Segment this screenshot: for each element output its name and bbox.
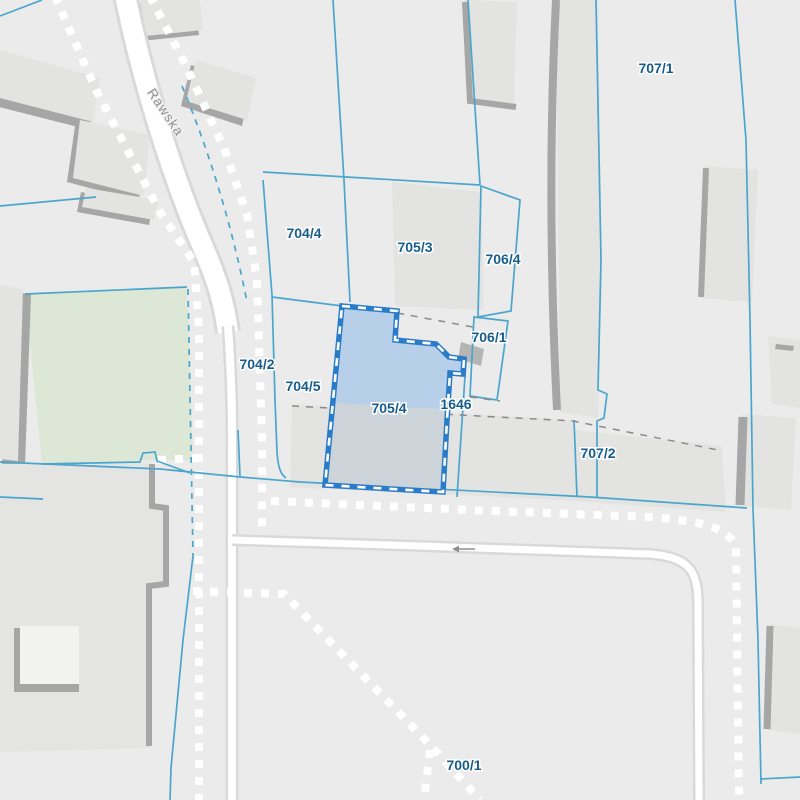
building <box>20 626 79 684</box>
road-vertical <box>228 326 232 800</box>
parcel-label-706-1[interactable]: 706/1 <box>471 329 506 345</box>
map-canvas[interactable]: Rawska 707/1 704/4 705/3 706/4 706/1 704… <box>0 0 800 800</box>
parcel-label-706-4[interactable]: 706/4 <box>485 251 520 267</box>
cadastral-map[interactable]: Rawska 707/1 704/4 705/3 706/4 706/1 704… <box>0 0 800 800</box>
parcel-label-707-1[interactable]: 707/1 <box>638 60 673 76</box>
parcel-label-704-4[interactable]: 704/4 <box>286 225 321 241</box>
parcel-label-704-2[interactable]: 704/2 <box>239 356 274 372</box>
building-shadow-edge <box>767 626 770 729</box>
parcel-label-705-4[interactable]: 705/4 <box>371 400 406 416</box>
parcel-label-700-1[interactable]: 700/1 <box>446 757 481 773</box>
parcel-label-1646[interactable]: 1646 <box>440 396 471 412</box>
parcel-label-704-5[interactable]: 704/5 <box>285 378 320 394</box>
parcel-label-707-2[interactable]: 707/2 <box>580 445 615 461</box>
selected-parcel-fill-lower <box>325 403 448 492</box>
green-area <box>25 287 193 464</box>
building <box>556 0 602 418</box>
parcel-label-705-3[interactable]: 705/3 <box>397 239 432 255</box>
building-block <box>0 463 167 752</box>
building-shadow-edge <box>740 417 743 505</box>
